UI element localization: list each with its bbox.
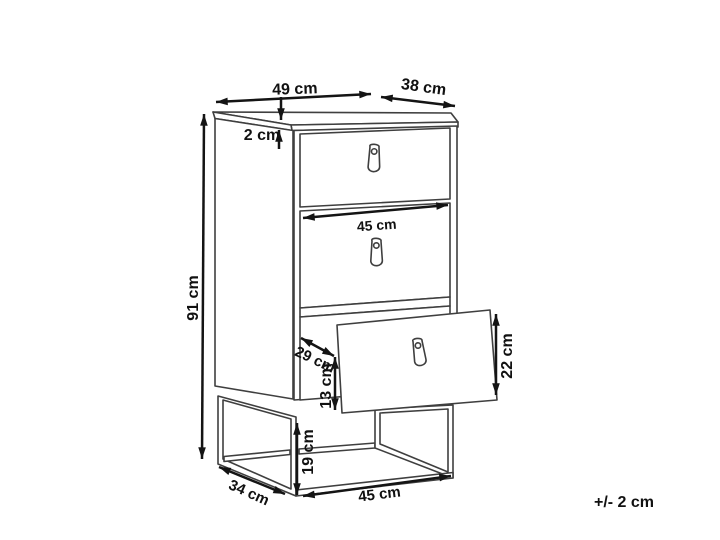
dimension-label: 38 cm xyxy=(400,76,447,99)
dimension-label: 91 cm xyxy=(185,275,202,320)
dimension-diagram: 49 cm 38 cm 2 cm 91 cm 45 cm 29 cm 13 cm xyxy=(0,0,720,540)
base-right-loop xyxy=(375,405,453,478)
dimension-inner-front-height: 13 cm xyxy=(318,357,335,410)
dimension-label: 45 cm xyxy=(356,216,397,235)
dimension-drawer-front-height: 22 cm xyxy=(496,314,516,395)
tolerance-note: +/- 2 cm xyxy=(594,494,654,511)
base-left-loop xyxy=(218,396,296,496)
dimension-top-depth: 38 cm xyxy=(381,76,455,106)
cabinet-left-side xyxy=(215,119,293,400)
dimension-label: 13 cm xyxy=(318,363,335,408)
diagram-svg: 49 cm 38 cm 2 cm 91 cm 45 cm 29 cm 13 cm xyxy=(0,0,720,540)
drawer-1-front xyxy=(300,128,450,207)
dimension-label: 49 cm xyxy=(272,80,318,99)
dimension-leg-height: 19 cm xyxy=(297,423,317,495)
pulled-out-drawer xyxy=(337,310,497,413)
dimension-label: 22 cm xyxy=(499,333,516,378)
drawer-3-front xyxy=(337,310,497,413)
dimension-label: 19 cm xyxy=(300,429,317,474)
dimension-height: 91 cm xyxy=(185,114,204,459)
dimension-label: 2 cm xyxy=(244,127,280,144)
dimension-top-width: 49 cm xyxy=(216,80,371,102)
